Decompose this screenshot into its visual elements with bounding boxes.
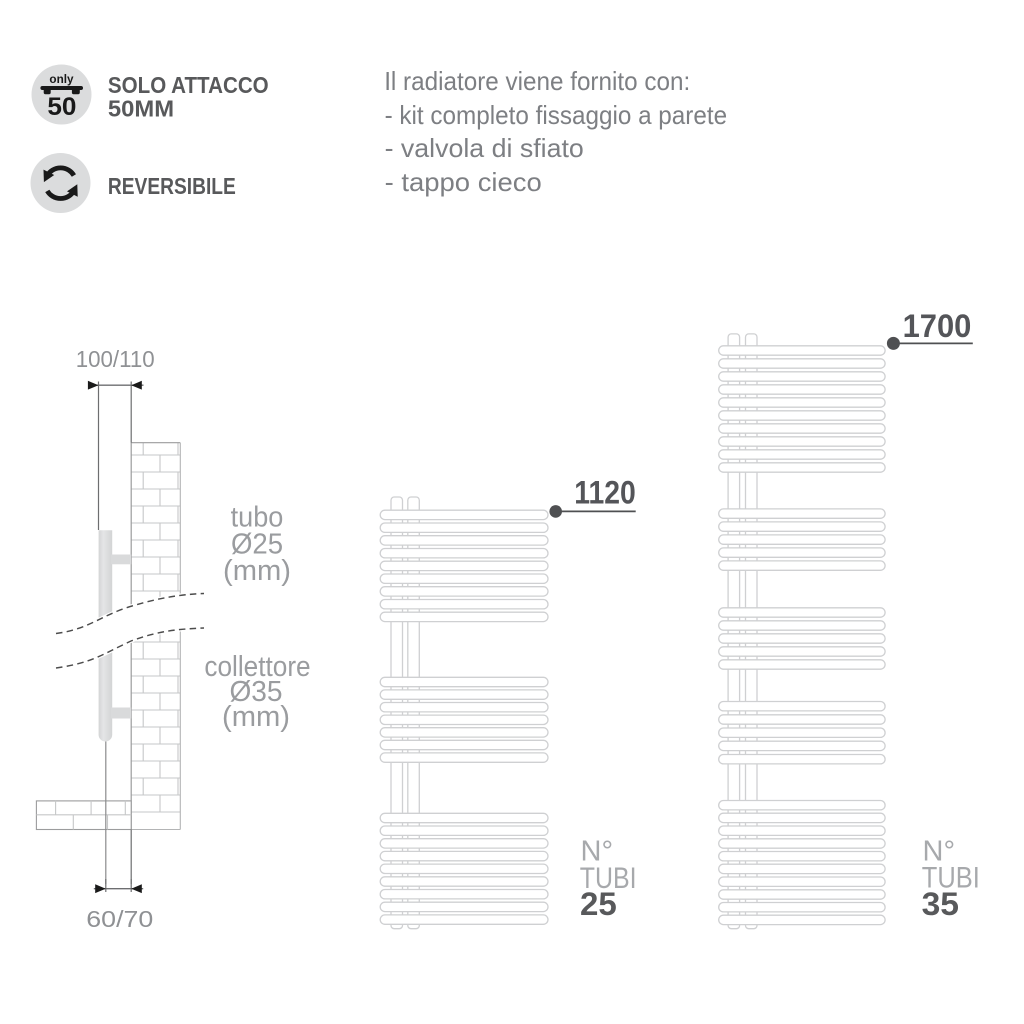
svg-text:only: only <box>49 74 74 86</box>
svg-text:(mm): (mm) <box>222 701 290 733</box>
svg-text:SOLO ATTACCO: SOLO ATTACCO <box>108 72 269 98</box>
svg-text:25: 25 <box>580 886 617 922</box>
svg-text:35: 35 <box>922 886 959 922</box>
svg-text:(mm): (mm) <box>223 555 291 587</box>
svg-text:60/70: 60/70 <box>86 906 153 932</box>
svg-text:50MM: 50MM <box>108 96 174 122</box>
svg-text:100/110: 100/110 <box>76 346 155 372</box>
svg-text:1120: 1120 <box>574 475 636 511</box>
svg-text:- tappo cieco: - tappo cieco <box>385 167 542 197</box>
svg-text:1700: 1700 <box>903 308 972 344</box>
svg-text:- kit completo fissaggio a par: - kit completo fissaggio a parete <box>385 100 727 130</box>
svg-text:- valvola di sfiato: - valvola di sfiato <box>385 133 584 163</box>
svg-text:Il radiatore viene fornito con: Il radiatore viene fornito con: <box>384 66 690 96</box>
svg-text:REVERSIBILE: REVERSIBILE <box>108 173 236 199</box>
svg-text:50: 50 <box>47 93 76 121</box>
